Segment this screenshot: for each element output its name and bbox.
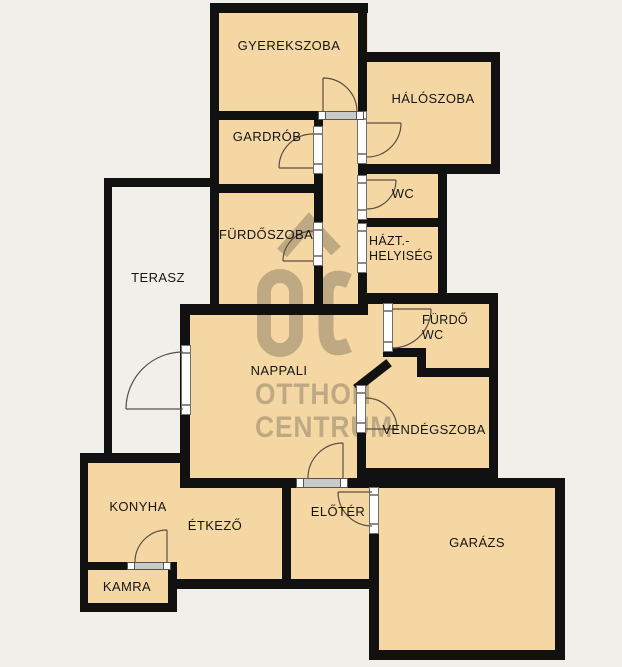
room-label-hazt-line2: HELYISÉG bbox=[369, 249, 433, 264]
room-label-hazt-line1: HÁZT.- bbox=[369, 234, 433, 249]
room-label-furdo-wc-line2: WC bbox=[422, 328, 468, 343]
room-label-hazt-helyiseg: HÁZT.- HELYISÉG bbox=[369, 234, 433, 263]
room-label-etkezo: ÉTKEZŐ bbox=[188, 518, 242, 533]
room-label-garazs: GARÁZS bbox=[449, 535, 505, 550]
room-label-nappali: NAPPALI bbox=[251, 363, 308, 378]
room-label-gardrob: GARDRÓB bbox=[233, 129, 302, 144]
room-label-eloter: ELŐTÉR bbox=[311, 504, 365, 519]
door-arc-gyerekszoba bbox=[323, 78, 357, 112]
room-label-furdo-wc: FÜRDŐ WC bbox=[422, 313, 468, 342]
room-label-vendegszoba: VENDÉGSZOBA bbox=[382, 422, 485, 437]
room-label-konyha: KONYHA bbox=[109, 499, 166, 514]
room-label-haloszoba: HÁLÓSZOBA bbox=[391, 91, 474, 106]
room-label-wc: WC bbox=[392, 186, 414, 201]
room-label-terasz: TERASZ bbox=[131, 270, 185, 285]
room-label-furdo-wc-line1: FÜRDŐ bbox=[422, 313, 468, 328]
door-arc-haloszoba bbox=[367, 123, 401, 157]
room-label-kamra: KAMRA bbox=[103, 579, 151, 594]
door-arc-terasz bbox=[126, 352, 183, 409]
door-arc-kamra bbox=[135, 530, 167, 562]
door-arcs-layer bbox=[0, 0, 622, 667]
room-label-gyerekszoba: GYEREKSZOBA bbox=[238, 38, 341, 53]
floorplan-canvas: OTTHON CENTRUM bbox=[0, 0, 622, 667]
door-arc-eloter bbox=[308, 443, 343, 478]
room-label-furdoszoba: FÜRDŐSZOBA bbox=[219, 227, 313, 242]
